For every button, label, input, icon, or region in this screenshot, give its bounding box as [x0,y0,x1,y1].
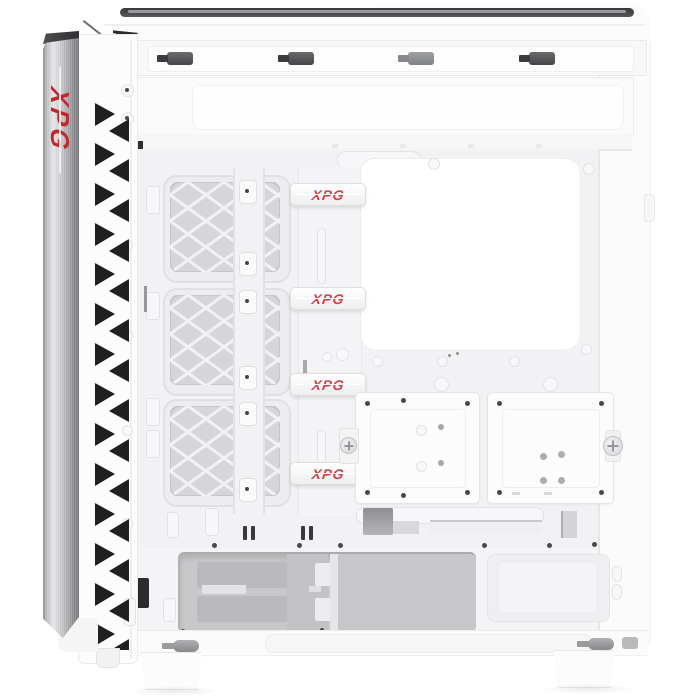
cable-channel-slot [317,228,326,284]
rail-screw [245,189,249,193]
standoff-hole [583,163,595,175]
screw-dot [482,543,487,548]
gpu-holder-step [393,521,419,534]
bottom-edge-slot [163,598,176,622]
plate-inner-outline [370,409,466,488]
plate-screw [365,401,370,406]
screw-dot [212,543,217,548]
rail-screw [245,375,249,379]
front-panel-logo: XPG [45,60,75,180]
top-groove-highlight [128,10,626,13]
triangle-vents [93,102,131,650]
top-frame-channel [148,46,634,72]
foot-shadow [543,684,633,694]
clip-thumbscrew [340,437,357,454]
top-latch-pin [408,52,434,65]
plate-thumbscrew [603,436,623,456]
mounting-plate [487,392,614,504]
plate-hole-pin [540,477,547,484]
case-thumbscrew [173,640,199,652]
top-panel-seam [104,24,645,26]
plate-hole [416,461,427,472]
front-column-foot [96,648,120,668]
mounting-plate [355,392,480,504]
cable-tie-tick [309,526,313,540]
plate-dash [512,492,520,495]
standoff-hole [428,158,440,170]
strap-logo-strike [297,473,359,475]
standoff-hole [437,356,448,367]
top-latch-pin [167,52,193,65]
plate-inner-outline [502,409,600,488]
shroud-small-slot [205,508,219,536]
standoff-hole [509,356,520,367]
cpu-cutout [360,158,579,349]
top-latch-pin [529,52,555,65]
shroud-bar [561,511,577,538]
plate-screw [465,490,470,495]
cable-channel-hole [336,348,349,361]
cable-channel-hole [322,352,332,362]
bay-divider [330,554,338,632]
screw-dot [592,542,597,547]
tray-edge-slot [146,292,160,320]
top-latch-pin [288,52,314,65]
plate-screw [401,398,406,403]
plate-hole-pin [438,460,444,466]
screw-dot [547,543,552,548]
velcro-strap: XPG [290,287,366,310]
rail-screw [245,261,249,265]
rail-mark [400,144,406,148]
rail-screw [245,487,249,491]
product-photo-canvas: XPG XPG XPG XPG [0,0,700,700]
plate-hole-pin [558,477,565,484]
caddy-handle [309,586,321,592]
plate-screw [599,401,604,406]
case-thumbscrew [588,638,614,650]
velcro-strap: XPG [290,183,366,206]
plate-screw [497,401,502,406]
front-logo-strike [59,67,61,173]
standoff-hole [372,356,383,367]
tray-edge-tick [144,286,147,312]
tray-edge-slot [146,186,160,214]
screw-dot [456,352,459,355]
shroud-shelf [430,520,542,534]
plate-dash [544,492,552,495]
velcro-strap: XPG [290,373,366,396]
vent-hole [543,377,558,392]
caddy-shelf [202,585,246,594]
top-radiator-recess [192,85,624,130]
rail-screw [245,411,249,415]
front-column-screw-center [125,88,129,92]
rear-corner-knob [622,637,638,649]
vent-hole [434,377,449,392]
strap-logo-strike [297,194,359,196]
psu-recess-inner [497,561,598,613]
bottom-rail-recess [265,634,592,653]
gpu-holder-block [363,508,393,535]
fan-bracket-rail [233,168,265,514]
rail-mark [468,144,474,148]
plate-hole-pin [438,424,444,430]
strap-logo-strike [297,298,359,300]
cable-tie-tick [251,526,255,540]
tray-edge-slot [146,398,160,426]
screw-dot [297,543,302,548]
drive-caddy [197,596,287,622]
rail-mark [536,144,542,148]
plate-hole-pin [558,451,565,458]
cable-channel-slot [317,430,326,464]
rear-panel-slot [612,566,622,582]
plate-screw [465,401,470,406]
screw-dot [338,543,343,548]
shroud-small-slot [167,512,179,538]
case-foot [139,652,203,690]
plate-screw [401,493,406,498]
plate-screw [497,490,502,495]
pc-case: XPG XPG XPG XPG [0,0,700,700]
case-foot [552,650,616,688]
foot-shadow [130,686,220,696]
drive-bay-opening [178,552,476,632]
plate-screw [365,490,370,495]
rear-panel-slot [612,584,622,600]
rail-screw [245,299,249,303]
plate-screw [599,490,604,495]
rear-panel-tab [644,194,655,222]
bay-right-section [338,554,476,632]
cable-tie-tick [243,526,247,540]
rail-mark [332,144,338,148]
cable-tie-tick [301,526,305,540]
tray-edge-slot [146,430,160,458]
screw-dot [448,354,451,357]
plate-hole [416,425,427,436]
strap-logo-strike [297,384,359,386]
plate-hole-pin [540,453,547,460]
standoff-hole [581,344,592,355]
